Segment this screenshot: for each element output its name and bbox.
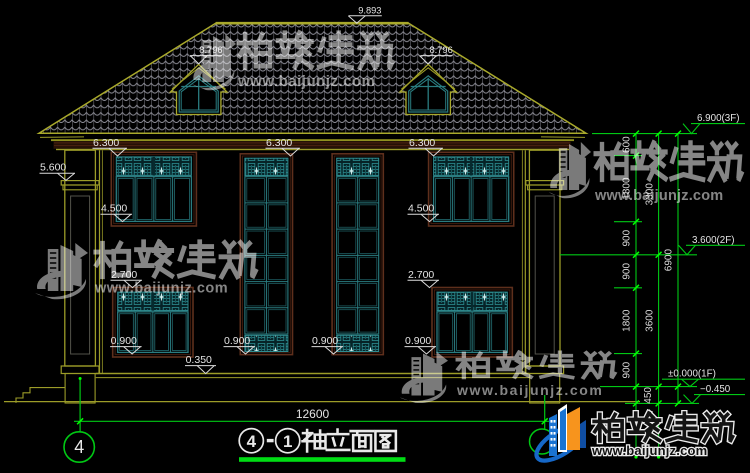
svg-text:0.900: 0.900	[224, 335, 250, 347]
svg-text:www.baijunjz.com: www.baijunjz.com	[237, 73, 375, 90]
svg-text:0.350: 0.350	[186, 354, 212, 366]
svg-text:8.796: 8.796	[430, 45, 453, 55]
svg-text:www.baijunjz.com: www.baijunjz.com	[94, 281, 228, 297]
svg-text:12600: 12600	[296, 407, 330, 421]
svg-text:6.300: 6.300	[266, 137, 292, 149]
svg-text:www.baijunjz.com: www.baijunjz.com	[594, 188, 723, 204]
svg-text:3.600(2F): 3.600(2F)	[692, 235, 734, 246]
svg-text:1800: 1800	[622, 309, 633, 332]
svg-text:900: 900	[622, 263, 633, 280]
svg-text:6900: 6900	[664, 249, 675, 272]
svg-text:6.300: 6.300	[409, 137, 435, 149]
svg-text:4.500: 4.500	[101, 203, 127, 215]
svg-text:4.500: 4.500	[408, 203, 434, 215]
svg-text:www.baijunjz.com: www.baijunjz.com	[456, 382, 603, 398]
svg-text:±0.000(1F): ±0.000(1F)	[668, 369, 716, 380]
svg-text:4: 4	[74, 437, 84, 457]
svg-text:0.900: 0.900	[111, 335, 137, 347]
svg-text:450: 450	[643, 387, 654, 404]
svg-text:0.900: 0.900	[312, 335, 338, 347]
svg-text:4: 4	[247, 432, 257, 451]
svg-text:www.baijunjz.com: www.baijunjz.com	[591, 443, 707, 458]
svg-text:0.900: 0.900	[405, 335, 431, 347]
svg-text:5.600: 5.600	[40, 162, 66, 174]
svg-text:900: 900	[622, 361, 633, 378]
svg-text:6.900(3F): 6.900(3F)	[697, 113, 739, 124]
svg-text:2.700: 2.700	[408, 269, 434, 281]
svg-text:1: 1	[283, 432, 292, 451]
svg-text:3600: 3600	[645, 309, 656, 332]
svg-text:9.893: 9.893	[358, 5, 381, 15]
svg-text:900: 900	[622, 229, 633, 246]
svg-text:6.300: 6.300	[93, 137, 119, 149]
svg-text:−0.450: −0.450	[700, 384, 731, 395]
